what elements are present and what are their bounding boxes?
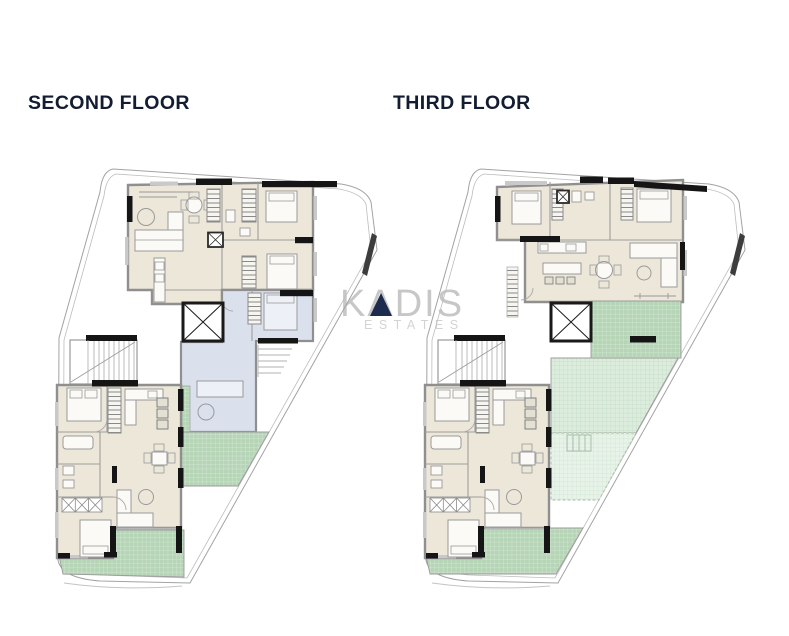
roof-terrace-upper	[591, 301, 681, 358]
staircase	[70, 335, 137, 384]
elevator-core	[183, 303, 223, 341]
terrace-middle	[181, 432, 269, 486]
second-floor-title: SECOND FLOOR	[28, 92, 190, 115]
third-floor-title: THIRD FLOOR	[393, 92, 531, 115]
roof-terrace-mid	[551, 358, 678, 433]
external-stair	[258, 345, 292, 377]
staircase	[438, 335, 505, 384]
third-floor-plan	[423, 169, 745, 588]
upper-apartment	[497, 180, 687, 317]
second-floor-plan	[55, 169, 377, 588]
floor-plans-page: { "page": {"width": 789, "height": 636, …	[0, 0, 789, 636]
elevator-core	[551, 303, 591, 341]
upper-apartment	[125, 182, 317, 305]
